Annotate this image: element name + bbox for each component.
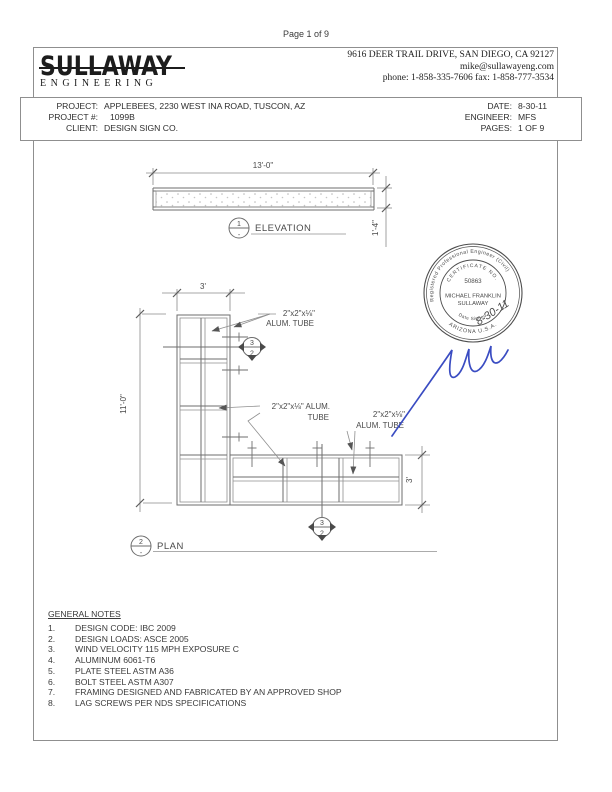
stamp-ring-text-bottom: ARIZONA U.S.A. [448,322,499,336]
engineer-signature [392,346,508,436]
plan-left-dim: 11'-0" [119,394,128,414]
section-marker-bottom: 3 2 [308,444,336,541]
note-item: 8.LAG SCREWS PER NDS SPECIFICATIONS [48,698,508,709]
plan-view: 3' 11'-0" 3' 3 2 3 2 [119,282,437,557]
general-notes-list: 1.DESIGN CODE: IBC 20092.DESIGN LOADS: A… [48,623,508,709]
stamp-cert-number: 50863 [464,278,482,285]
plan-marker-number: 2 [139,539,143,546]
scanned-drawing-page: { "page_label": "Page 1 of 9", "letterhe… [0,0,612,792]
elevation-height-dim: 1'-4" [371,220,380,236]
general-notes-section: GENERAL NOTES 1.DESIGN CODE: IBC 20092.D… [48,609,508,709]
plan-title: PLAN [157,541,184,552]
note-item: 2.DESIGN LOADS: ASCE 2005 [48,634,508,645]
note-item: 7.FRAMING DESIGNED AND FABRICATED BY AN … [48,687,508,698]
general-notes-title: GENERAL NOTES [48,609,508,619]
stamp-name-line1: MICHAEL FRANKLIN [445,294,501,300]
svg-text:TUBE: TUBE [308,413,329,422]
alum-tube-label-1: 2"x2"x⅛" ALUM. TUBE [212,309,315,331]
svg-text:3: 3 [320,520,324,527]
svg-text:2"x2"x⅛" ALUM.: 2"x2"x⅛" ALUM. [272,402,330,411]
plan-right-dim: 3' [405,477,414,483]
stamp-name-line2: SULLAWAY [458,301,489,307]
svg-text:3: 3 [250,340,254,347]
elevation-title: ELEVATION [255,223,311,234]
plan-horizontal-leg [230,455,402,505]
note-item: 3.WIND VELOCITY 115 MPH EXPOSURE C [48,644,508,655]
note-item: 6.BOLT STEEL ASTM A307 [48,677,508,688]
alum-tube-label-2: 2"x2"x⅛" ALUM. TUBE [219,402,330,466]
beam-body [156,191,371,207]
svg-text:ARIZONA U.S.A.: ARIZONA U.S.A. [448,322,499,336]
elevation-width-dim: 13'-0" [253,161,274,170]
section-marker-top: 3 2 [163,338,266,362]
svg-text:ALUM. TUBE: ALUM. TUBE [266,319,314,328]
svg-text:2"x2"x⅛": 2"x2"x⅛" [283,309,315,318]
elevation-marker-number: 1 [237,221,241,228]
note-item: 1.DESIGN CODE: IBC 2009 [48,623,508,634]
alum-tube-label-3: 2"x2"x⅛" ALUM. TUBE [347,410,405,474]
svg-text:2"x2"x⅛": 2"x2"x⅛" [373,410,405,419]
plan-top-dim: 3' [200,282,206,291]
elevation-view: 13'-0" 1'-4" 1 - ELEVATION [146,161,392,247]
note-item: 5.PLATE STEEL ASTM A36 [48,666,508,677]
note-item: 4.ALUMINUM 6061-T6 [48,655,508,666]
pe-stamp: Registered Professional Engineer (Civil)… [424,244,522,342]
